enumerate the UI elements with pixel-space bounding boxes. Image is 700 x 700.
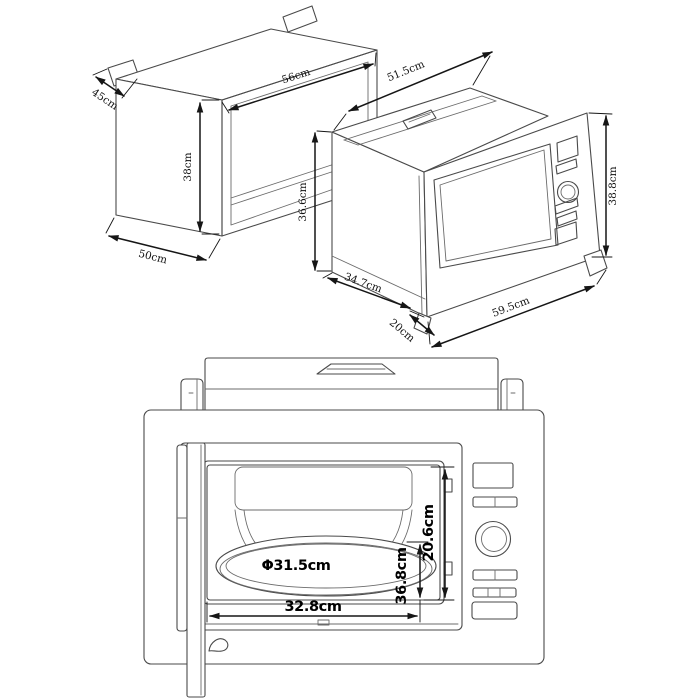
technical-drawing-page: 45cm 56cm 38cm 50cm (0, 0, 700, 700)
dim-label-turntable-diameter: Φ31.5cm (261, 558, 330, 574)
dim-label-top-width: 51.5cm (385, 58, 426, 84)
cabinet-left-face (116, 79, 222, 236)
dim-label-cabinet-height: 38cm (182, 152, 194, 181)
dim-label-front-offset: 20cm (387, 317, 417, 345)
microwave-isometric-view: 51.5cm 36.6cm 34.7cm 20cm 59.5cm 38.8cm (297, 52, 619, 347)
rear-body (205, 358, 498, 412)
left-mounting-bracket (181, 379, 203, 412)
right-mounting-bracket (501, 379, 523, 412)
dim-label-cavity-width: 32.8cm (284, 599, 341, 615)
cabinet-right-tab (283, 6, 317, 32)
dim-label-front-width: 59.5cm (490, 295, 531, 320)
dim-label-cabinet-depth: 50cm (137, 248, 168, 267)
microwave-front-view: 20.6cm 36.8cm 32.8cm Φ31.5cm (144, 358, 544, 697)
dim-label-left-height: 36.6cm (297, 182, 309, 221)
dim-label-front-height: 38.8cm (607, 166, 619, 205)
dim-label-plate-to-floor: 36.8cm (394, 547, 410, 604)
open-door-edge (177, 445, 187, 631)
microwave-dimension-diagram: 45cm 56cm 38cm 50cm (0, 0, 700, 700)
open-door-panel (187, 443, 205, 697)
dim-label-cavity-height: 20.6cm (421, 504, 437, 561)
